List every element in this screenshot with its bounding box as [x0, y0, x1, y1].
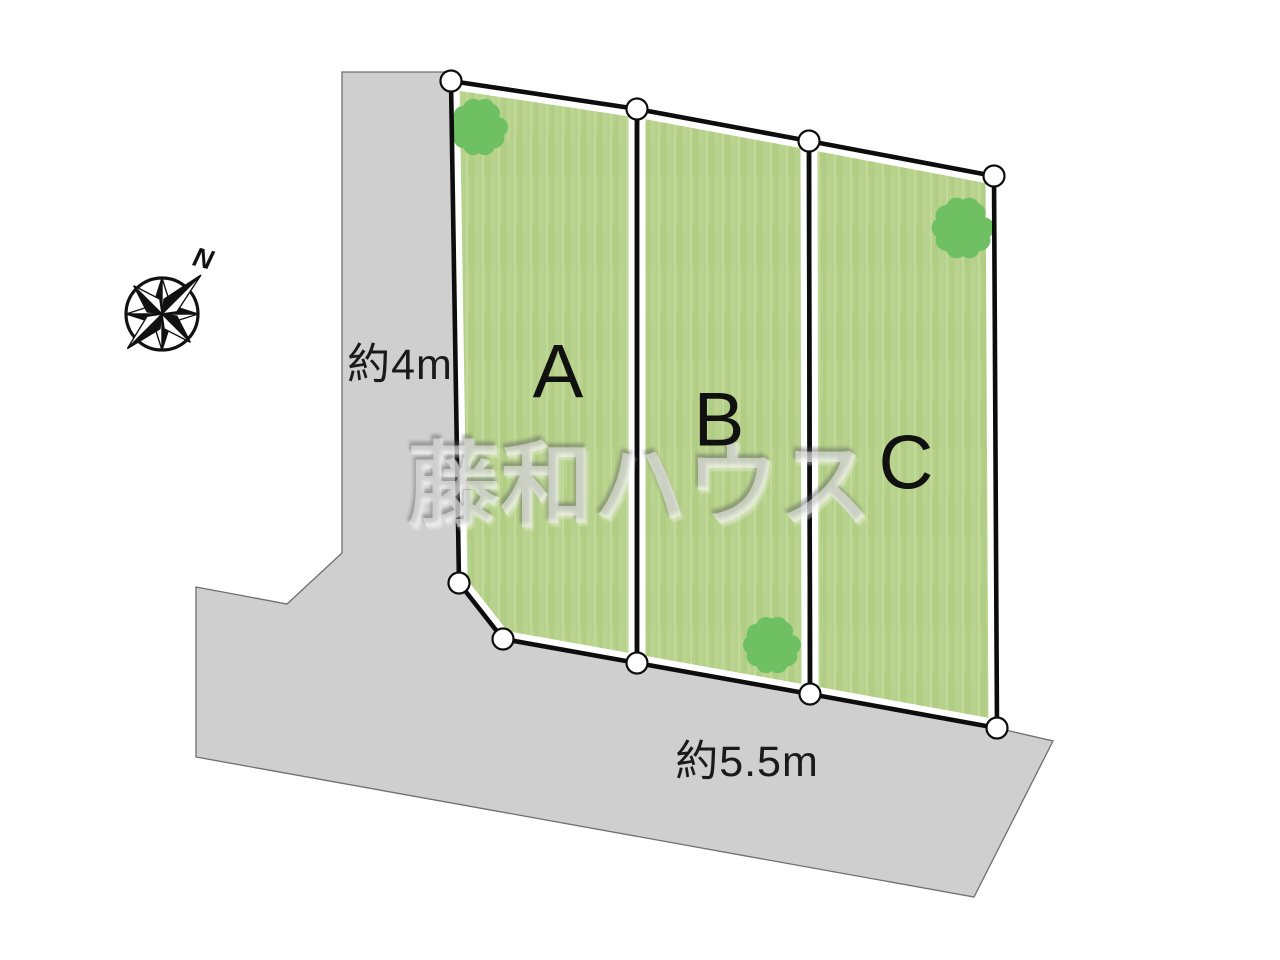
- vertex-marker: [441, 71, 462, 92]
- vertex-marker: [984, 166, 1005, 187]
- vertex-marker: [987, 718, 1008, 739]
- vertex-marker: [493, 629, 514, 650]
- vertex-marker: [627, 99, 648, 120]
- road-width-label-vertical: 約4m: [347, 330, 453, 392]
- site-plan: 藤和ハウス N 約4m 約5.5m A B C: [0, 0, 1280, 960]
- vertex-marker: [627, 653, 648, 674]
- vertex-marker: [799, 131, 820, 152]
- lot-label-c: C: [879, 420, 934, 507]
- vertex-marker: [800, 684, 821, 705]
- road-width-label-horizontal: 約5.5m: [675, 727, 819, 789]
- lot-label-a: A: [533, 329, 584, 416]
- vertex-marker: [449, 573, 470, 594]
- lot-label-b: B: [694, 377, 745, 464]
- company-watermark: 藤和ハウス: [408, 411, 873, 546]
